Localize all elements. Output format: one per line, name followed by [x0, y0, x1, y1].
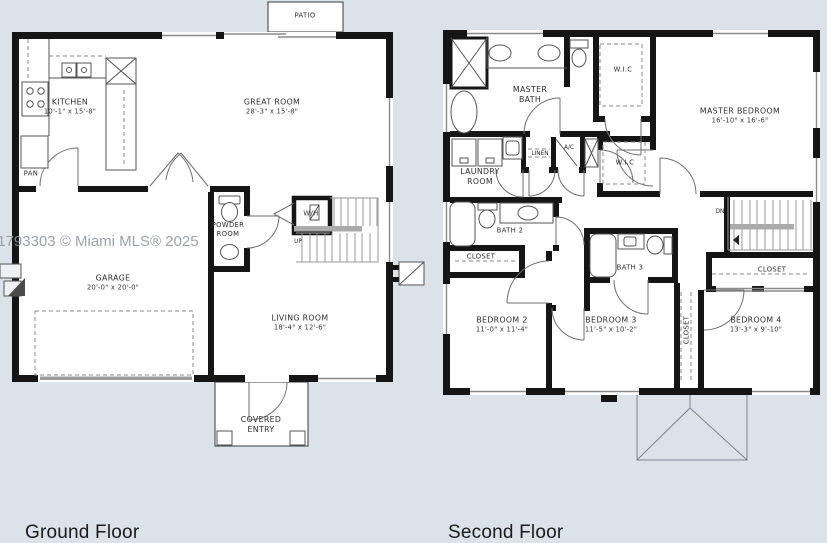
covered-entry-label: COVERED ENTRY — [232, 415, 290, 435]
vanity — [618, 234, 644, 249]
floor-plan-image: PATIO KITCHEN10'-1" x 15'-8" GREAT ROOM2… — [0, 0, 827, 543]
patio-label: PATIO — [294, 12, 315, 21]
tub-icon — [590, 234, 616, 277]
closet-bedroom2-label: CLOSET — [467, 253, 496, 262]
wic-top-label: W.I.C — [614, 66, 633, 75]
ac-label: A/C — [564, 145, 574, 153]
bath3-label: BATH 3 — [617, 264, 644, 273]
ac-pad-icon — [393, 262, 424, 285]
laundry-room-label: LAUNDRY ROOM — [453, 167, 507, 187]
closet-bedroom4-label: CLOSET — [758, 266, 787, 275]
toilet-icon — [647, 236, 672, 254]
master-bedroom-label: MASTER BEDROOM16'-10" x 16'-6" — [700, 107, 780, 126]
second-floor-title: Second Floor — [448, 522, 563, 543]
washer-icon — [452, 139, 476, 166]
kitchen-label: KITCHEN10'-1" x 15'-8" — [44, 98, 96, 117]
living-room-label: LIVING ROOM18'-4" x 12'-6" — [272, 314, 329, 333]
tub-icon — [451, 91, 477, 133]
dryer-icon — [478, 139, 502, 166]
bedroom2-label: BEDROOM 211'-0" x 11'-4" — [476, 316, 528, 335]
stairs-dn-label: DN — [716, 209, 725, 217]
stairs-up-label: UP — [294, 239, 302, 247]
bedroom4-label: BEDROOM 413'-3" x 9'-10" — [730, 316, 782, 335]
toilet-icon — [570, 40, 588, 67]
closet-hall-label: CLOSET — [683, 316, 692, 345]
chase-icon — [585, 139, 598, 167]
kitchen-island — [106, 58, 136, 170]
second-floor-plan — [443, 30, 820, 460]
sink-icon — [221, 245, 239, 260]
roof-outline — [637, 395, 747, 460]
floor-plan-drawing — [0, 0, 827, 543]
stair-rail — [730, 224, 794, 230]
pantry-label: PAN — [24, 170, 38, 179]
bath2-label: BATH 2 — [497, 227, 524, 236]
garage-label: GARAGE20'-0" x 20'-0" — [87, 274, 139, 293]
ground-floor-title: Ground Floor — [25, 522, 139, 543]
wic-bottom-label: W.I.C — [616, 159, 635, 168]
garage-door — [40, 377, 192, 381]
linen-label: LINEN — [531, 151, 548, 159]
ground-floor-area — [12, 32, 393, 382]
fridge-icon — [21, 136, 48, 168]
kitchen-sink-icon — [62, 63, 91, 77]
laundry-sink-icon — [503, 137, 522, 159]
stair-rail — [294, 226, 362, 232]
powder-room-label: POWDER ROOM — [205, 221, 251, 239]
bedroom3-label: BEDROOM 311'-5" x 10'-2" — [585, 316, 637, 335]
shower-icon — [451, 38, 487, 88]
mls-watermark: 11793303 © Miami MLS® 2025 — [0, 233, 199, 250]
master-bath-label: MASTER BATH — [504, 85, 556, 105]
tub-icon — [450, 202, 475, 246]
water-heater-label: W/H — [303, 210, 318, 219]
great-room-label: GREAT ROOM28'-3" x 15'-8" — [244, 98, 300, 117]
